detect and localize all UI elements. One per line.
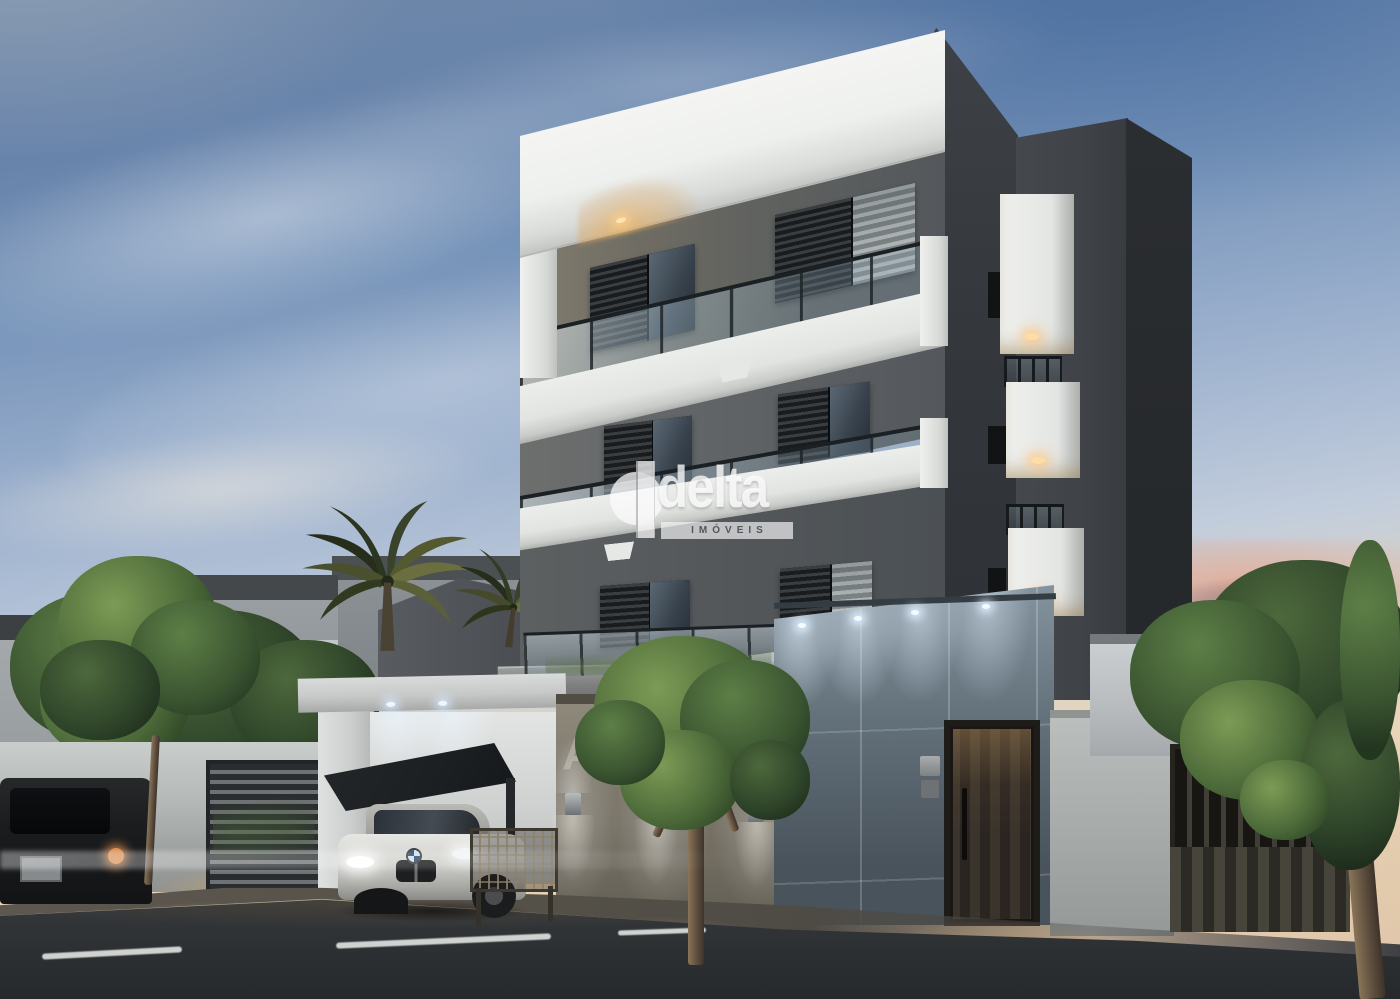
intercom-panel	[920, 756, 940, 776]
balcony-corbel	[604, 541, 634, 561]
wall-sconce	[565, 793, 581, 815]
corner-column	[920, 236, 948, 346]
tree-foliage	[575, 700, 665, 785]
intercom-screen	[921, 780, 939, 798]
fence-post	[476, 888, 481, 926]
tree-foliage	[730, 740, 810, 820]
balcony-downlight	[1031, 457, 1045, 464]
tree-foliage	[40, 640, 160, 740]
side-balcony-box	[1000, 194, 1074, 354]
rendering-canvas: AL	[0, 0, 1400, 999]
carport-beam	[298, 673, 567, 713]
downlight	[911, 610, 919, 615]
tree-foliage	[1340, 540, 1400, 760]
tree-trunk	[688, 810, 704, 965]
balcony-downlight	[1025, 333, 1039, 340]
corner-column	[920, 418, 948, 488]
door-handle	[962, 788, 967, 860]
sedan-front-wheel	[354, 888, 408, 914]
downlight	[438, 701, 447, 706]
suv-rear-window	[10, 788, 110, 834]
light-flare-streak	[0, 851, 780, 869]
side-balcony-box	[1006, 382, 1080, 478]
side-slit-window	[988, 426, 1006, 464]
tree-foliage	[1240, 760, 1330, 840]
downlight	[982, 604, 990, 609]
downlight	[386, 702, 395, 707]
fence-post	[548, 886, 553, 922]
downlight	[798, 623, 806, 628]
downlight	[854, 616, 862, 621]
louvered-gate	[206, 760, 322, 892]
